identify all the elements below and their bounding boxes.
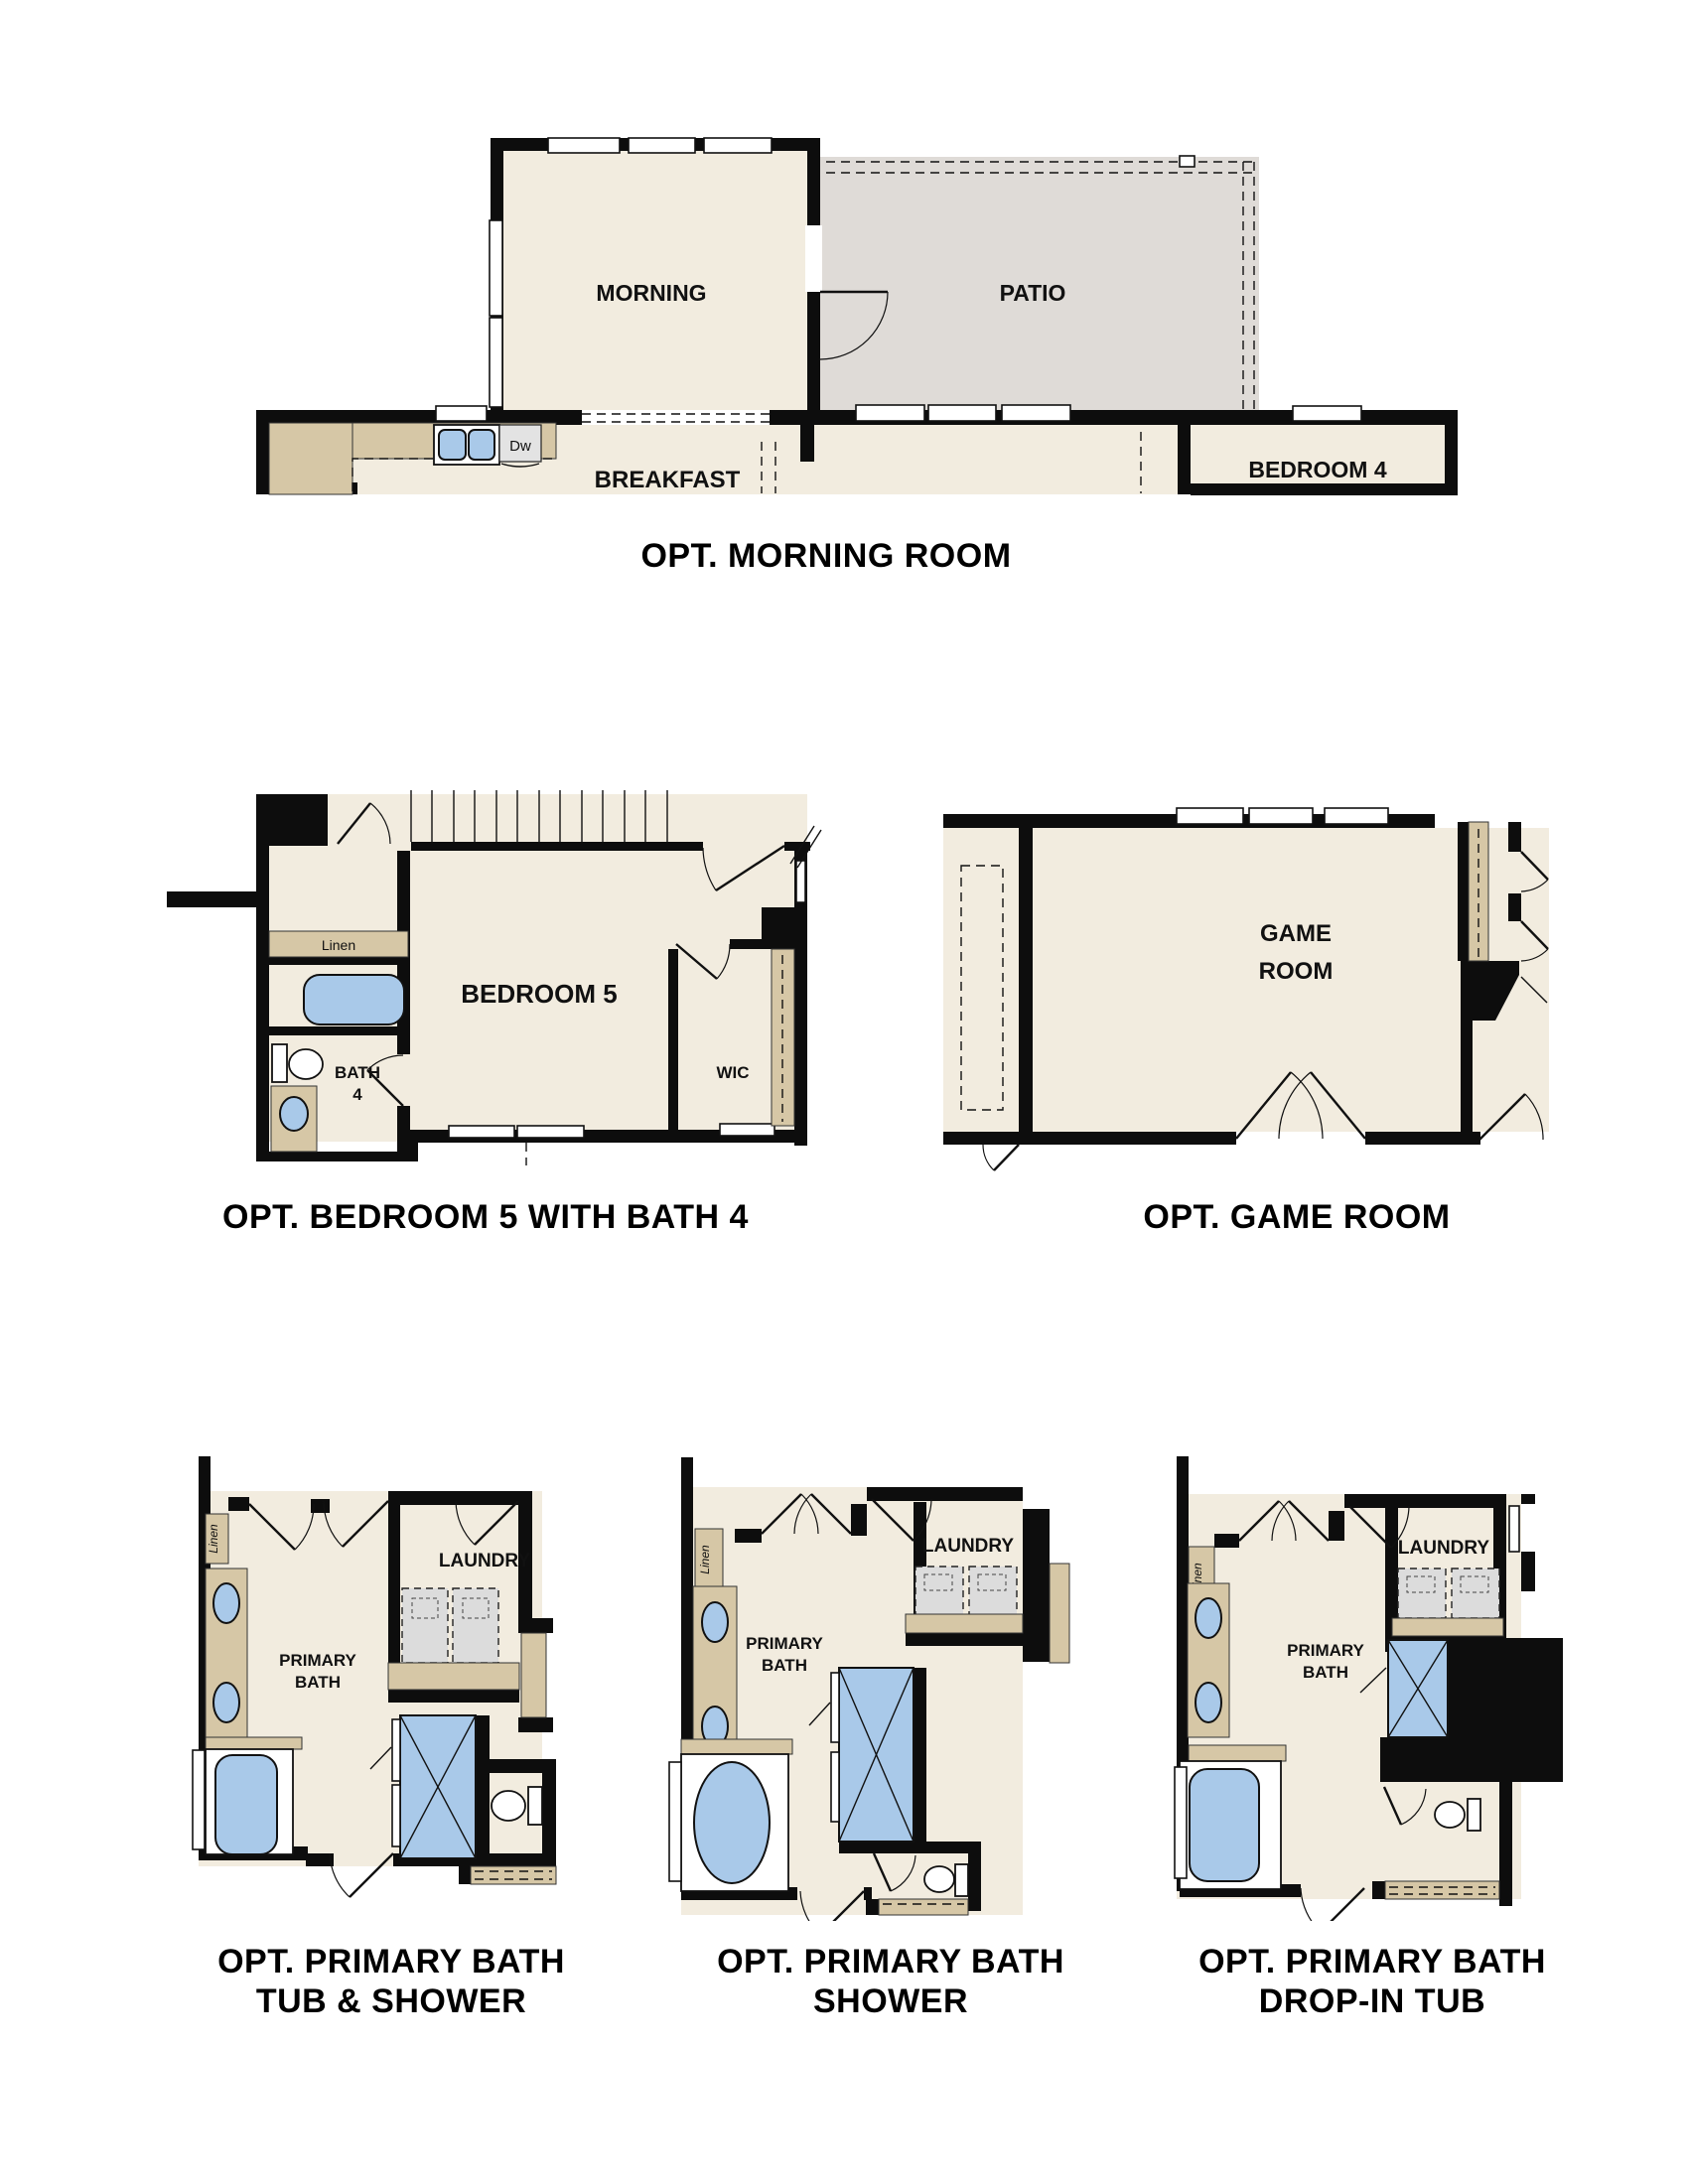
linen-closet: Linen (269, 931, 408, 957)
primary-bath-label-line2: BATH (1303, 1663, 1348, 1682)
bedroom4-label: BEDROOM 4 (1248, 457, 1387, 482)
bath2-linen: Linen (695, 1529, 723, 1590)
bedroom5-label: BEDROOM 5 (461, 979, 617, 1009)
caption-bath1-line1: OPT. PRIMARY BATH (143, 1942, 639, 1981)
bath3-vanity (1188, 1583, 1229, 1737)
primary-bath-label-line1: PRIMARY (1287, 1641, 1364, 1660)
caption-bath3: OPT. PRIMARY BATH DROP-IN TUB (1124, 1942, 1620, 2021)
bath1-vanity (206, 1569, 247, 1747)
dishwasher: Dw (499, 425, 541, 467)
vanity-sink (271, 1086, 317, 1152)
linen-label: Linen (322, 937, 355, 953)
bath3-toilet (1435, 1799, 1480, 1831)
kitchen-sink (434, 425, 499, 465)
bath2-tub (669, 1739, 792, 1891)
caption-bath1-line2: TUB & SHOWER (143, 1981, 639, 2021)
laundry-label: LAUNDRY (922, 1536, 1015, 1557)
washer (402, 1588, 448, 1663)
floorplan-primary-bath-2: Linen (655, 1444, 1082, 1921)
wic-label: WIC (716, 1063, 749, 1082)
caption-morning-room: OPT. MORNING ROOM (528, 536, 1124, 576)
caption-bath2-line1: OPT. PRIMARY BATH (642, 1942, 1139, 1981)
laundry-label: LAUNDRY (1398, 1538, 1490, 1559)
floorplan-primary-bath-1: Linen (184, 1420, 571, 1916)
bath3-tub (1175, 1745, 1286, 1889)
primary-bath-label-line1: PRIMARY (746, 1634, 823, 1653)
laundry-label: LAUNDRY (439, 1551, 531, 1571)
bath1-tub (193, 1737, 302, 1854)
caption-bath1: OPT. PRIMARY BATH TUB & SHOWER (143, 1942, 639, 2021)
dishwasher-label: Dw (509, 438, 531, 455)
primary-bath-label-line2: BATH (295, 1673, 341, 1692)
closet-rod (1469, 822, 1488, 961)
gameroom-label-line2: ROOM (1259, 958, 1334, 985)
gameroom-windows (1177, 808, 1388, 824)
breakfast-label: BREAKFAST (595, 467, 741, 493)
bath2-vanity (693, 1586, 737, 1763)
bath1-toilet (492, 1787, 542, 1825)
bath1-bottom-cabinet (471, 1866, 556, 1884)
caption-game-room: OPT. GAME ROOM (999, 1197, 1595, 1237)
gameroom-label-line1: GAME (1260, 920, 1332, 947)
bath3-bottom-cabinet (1385, 1881, 1499, 1899)
bath4-label-line1: BATH (335, 1063, 380, 1082)
primary-bath-label-line1: PRIMARY (279, 1651, 356, 1670)
caption-bedroom5: OPT. BEDROOM 5 WITH BATH 4 (138, 1197, 833, 1237)
bath4-label-line2: 4 (352, 1085, 362, 1104)
bath1-linen: Linen (206, 1514, 228, 1564)
floorplan-primary-bath-3: Linen (1172, 1444, 1579, 1921)
dryer (453, 1588, 498, 1663)
morning-room-label: MORNING (596, 280, 706, 306)
caption-bath2: OPT. PRIMARY BATH SHOWER (642, 1942, 1139, 2021)
floorplan-page: Dw MORNING PATIO BREAKFAST BEDROOM 4 OPT… (0, 0, 1688, 2184)
caption-bath3-line2: DROP-IN TUB (1124, 1981, 1620, 2021)
wic-closet-rod (772, 949, 794, 1126)
cased-opening (582, 410, 770, 425)
bathtub (304, 975, 404, 1024)
floorplan-morning-room: Dw MORNING PATIO BREAKFAST BEDROOM 4 (179, 84, 1470, 521)
primary-bath-label-line2: BATH (762, 1656, 807, 1675)
linen-label: Linen (698, 1545, 712, 1574)
bath2-bottom-cabinet (879, 1899, 968, 1915)
caption-bath3-line1: OPT. PRIMARY BATH (1124, 1942, 1620, 1981)
patio-label: PATIO (1000, 280, 1066, 306)
linen-label: Linen (207, 1524, 220, 1554)
floorplan-game-room: GAME ROOM (933, 754, 1569, 1181)
floorplan-bedroom5: Linen BEDROOM 5 BATH 4 WIC (159, 764, 834, 1171)
patio-post (1180, 156, 1195, 167)
caption-bath2-line2: SHOWER (642, 1981, 1139, 2021)
